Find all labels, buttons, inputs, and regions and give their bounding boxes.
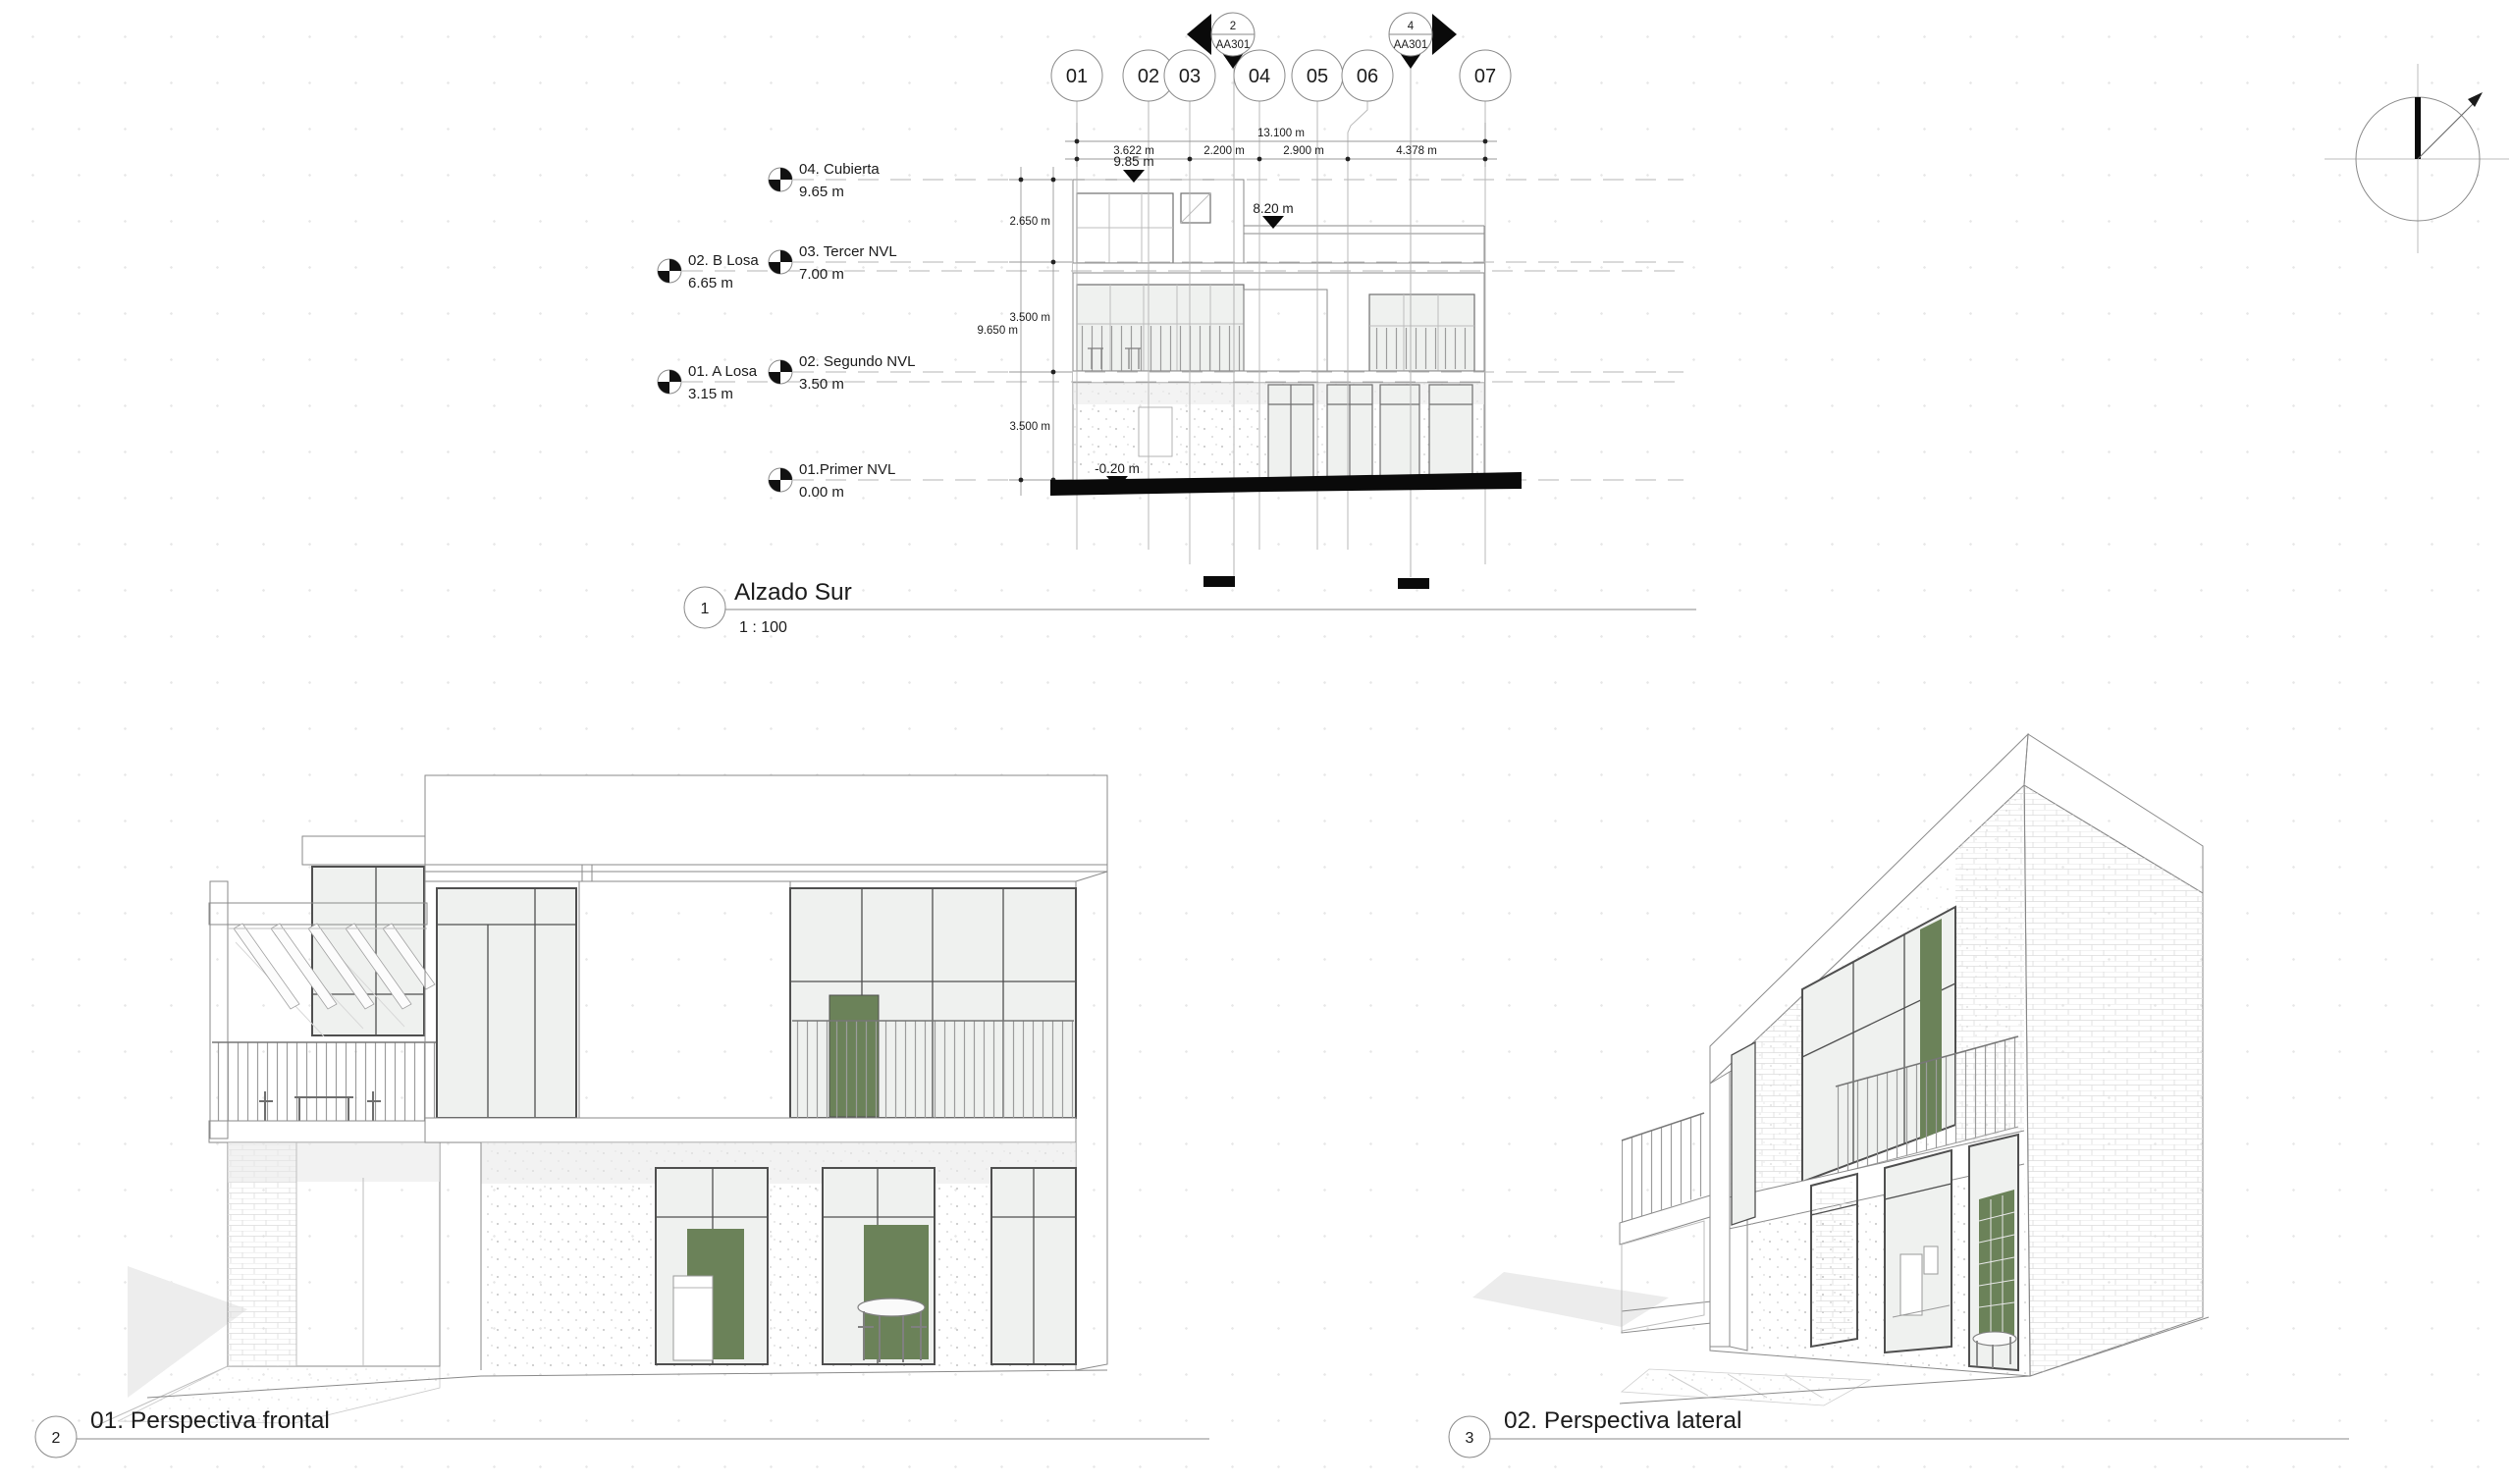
- view-number: 2: [52, 1430, 61, 1447]
- grid-bubble-label: 07: [1474, 66, 1496, 87]
- level-marker: 02. Segundo NVL 3.50 m: [769, 353, 915, 393]
- grid-bubble-label: 02: [1138, 66, 1159, 87]
- view-title: Alzado Sur: [734, 579, 852, 606]
- view-number: 3: [1466, 1430, 1474, 1447]
- level-elevation: 6.65 m: [688, 275, 733, 291]
- level-elevation: 0.00 m: [799, 484, 844, 501]
- section-marker: 4 AA301: [1389, 13, 1457, 69]
- dim-segment-label: 2.200 m: [1203, 145, 1245, 157]
- caption-frontal: 2 01. Perspectiva frontal: [35, 1407, 1209, 1457]
- perspective-lateral: 3 02. Perspectiva lateral: [1449, 734, 2349, 1457]
- green-wall-shelves: [1979, 1190, 2014, 1341]
- lateral-right-face: [2024, 785, 2203, 1376]
- view-title: 01. Perspectiva frontal: [90, 1407, 330, 1434]
- dim-height-overall-label: 9.650 m: [977, 325, 1018, 337]
- shadow: [1472, 1272, 1669, 1327]
- frontal-annex: [209, 836, 449, 1366]
- section-sheet-number: AA301: [1394, 39, 1428, 51]
- section-sheet-number: AA301: [1216, 39, 1251, 51]
- grid-bubble: 01: [1051, 50, 1102, 101]
- level-elevation: 7.00 m: [799, 266, 844, 283]
- level-marker: 01.Primer NVL 0.00 m: [769, 461, 895, 501]
- north-arrow: [2325, 64, 2509, 253]
- level-marker: 01. A Losa 3.15 m: [658, 363, 758, 402]
- grid-bubble: 05: [1292, 50, 1343, 101]
- dim-segment-label: 4.378 m: [1396, 145, 1437, 157]
- lateral-front-face: [1710, 785, 2030, 1376]
- drawing-sheet: 01 02 03 04 05 06: [0, 0, 2513, 1484]
- grid-bubble-label: 05: [1307, 66, 1328, 87]
- grid-bubble: 06: [1342, 50, 1393, 101]
- grid-bubble: 03: [1164, 50, 1215, 101]
- view-title: 02. Perspectiva lateral: [1504, 1407, 1741, 1434]
- dim-overall-label: 13.100 m: [1257, 128, 1305, 139]
- spot-elevation-value: 9.85 m: [1113, 154, 1153, 169]
- grid-bubble-label: 06: [1357, 66, 1378, 87]
- level-marker: 02. B Losa 6.65 m: [658, 252, 759, 291]
- grid-bubble-label: 01: [1066, 66, 1088, 87]
- level-name: 02. Segundo NVL: [799, 353, 915, 370]
- elevation-drawing: 01 02 03 04 05 06: [658, 13, 1696, 636]
- section-detail-number: 2: [1230, 21, 1236, 32]
- view-scale: 1 : 100: [739, 619, 787, 636]
- level-marker: 04. Cubierta 9.65 m: [769, 161, 880, 200]
- view-title-elevation: 1 Alzado Sur 1 : 100: [684, 579, 1696, 636]
- level-name: 01. A Losa: [688, 363, 758, 380]
- grid-bubble-label: 04: [1249, 66, 1270, 87]
- level-name: 01.Primer NVL: [799, 461, 895, 478]
- level-name: 02. B Losa: [688, 252, 759, 269]
- level-marker: 03. Tercer NVL 7.00 m: [769, 243, 897, 283]
- grid-bubbles: 01 02 03 04 05 06: [1051, 50, 1511, 101]
- level-name: 03. Tercer NVL: [799, 243, 897, 260]
- caption-lateral: 3 02. Perspectiva lateral: [1449, 1407, 2349, 1457]
- grid-bubble: 07: [1460, 50, 1511, 101]
- green-wall-dining: [864, 1225, 929, 1359]
- dim-height-label: 3.500 m: [1009, 421, 1050, 433]
- frontal-main-block: [425, 775, 1107, 1370]
- spot-elevation-value: 8.20 m: [1253, 201, 1293, 216]
- north-arrow-bar: [2415, 97, 2421, 159]
- dim-height-label: 3.500 m: [1009, 312, 1050, 324]
- grid-bubble: 04: [1234, 50, 1285, 101]
- elevation-building: [1073, 180, 1484, 480]
- dim-height-label: 2.650 m: [1009, 216, 1050, 228]
- spot-elevation-parapet: 9.85 m: [1113, 154, 1153, 183]
- level-elevation: 9.65 m: [799, 184, 844, 200]
- north-arrow-head: [2468, 92, 2483, 107]
- grid-bubble-label: 03: [1179, 66, 1201, 87]
- level-name: 04. Cubierta: [799, 161, 880, 178]
- level-elevation: 3.50 m: [799, 376, 844, 393]
- section-detail-number: 4: [1408, 21, 1415, 32]
- dimension-left: 2.650 m 3.500 m 3.500 m 9.650 m: [977, 167, 1072, 496]
- perspective-frontal: 2 01. Perspectiva frontal: [35, 775, 1209, 1457]
- view-number: 1: [701, 601, 710, 617]
- dim-segment-label: 2.900 m: [1283, 145, 1324, 157]
- level-elevation: 3.15 m: [688, 386, 733, 402]
- spot-elevation-value: -0.20 m: [1095, 461, 1140, 476]
